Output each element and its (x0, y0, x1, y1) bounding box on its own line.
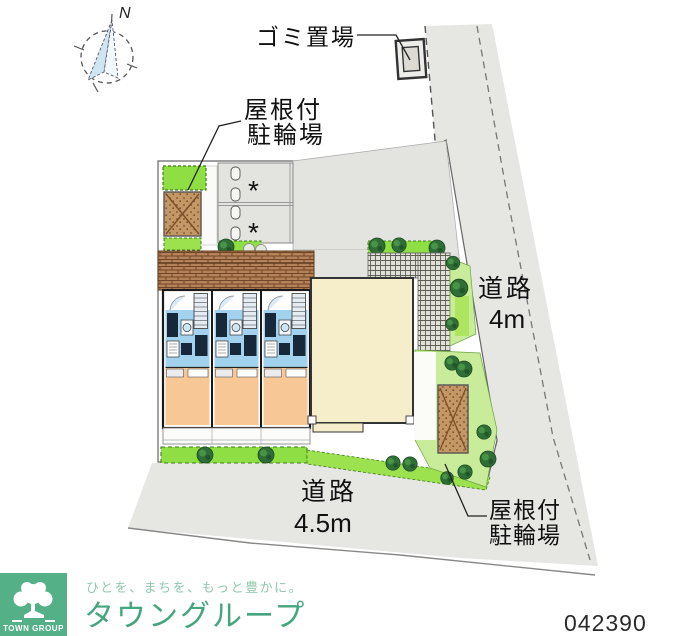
tree-icon (456, 361, 472, 377)
tiled-roof (158, 251, 314, 290)
road-bottom-label: 道路 4.5m (294, 478, 357, 538)
parking-stall-mark: * (248, 175, 259, 206)
bush-bed (161, 447, 307, 463)
tree-icon (480, 451, 496, 467)
svg-text:駐輪場: 駐輪場 (489, 522, 561, 548)
unit-floorplan (264, 294, 308, 426)
compass-icon: N (74, 5, 137, 92)
walkway-strip (414, 352, 436, 440)
svg-text:道路: 道路 (478, 275, 534, 303)
tree-icon (369, 238, 385, 254)
balcony-strip (163, 428, 310, 444)
unit-floorplan (166, 294, 210, 426)
town-group-logo: TOWN GROUP (0, 573, 67, 636)
tree-icon (446, 256, 460, 270)
tree-icon (386, 456, 400, 470)
bush-bed (455, 296, 469, 336)
bike-parking-area-top (164, 192, 201, 236)
garbage-area-label: ゴミ置場 (256, 24, 356, 50)
bush-bed (163, 166, 206, 190)
svg-text:道路: 道路 (301, 478, 357, 506)
bike-parking-top-label: 屋根付 駐輪場 (244, 97, 325, 149)
tree-icon (458, 465, 472, 479)
svg-text:屋根付: 屋根付 (244, 97, 322, 124)
tree-icon (258, 447, 274, 463)
plan-code: 042390 (564, 610, 647, 636)
site-plan-drawing: * * (0, 0, 700, 636)
tree-icon (392, 238, 406, 252)
tree-icon (403, 457, 417, 471)
logo-caption: TOWN GROUP (3, 624, 64, 633)
bike-parking-area-bottom (438, 385, 468, 453)
tree-icon (477, 425, 491, 439)
parking-lot: * * (218, 163, 293, 248)
svg-text:屋根付: 屋根付 (489, 497, 561, 523)
bush-bed (164, 238, 201, 250)
site-plan-page: * * (0, 0, 700, 636)
svg-text:4m: 4m (489, 304, 525, 334)
tree-icon (446, 318, 459, 331)
compass-north-label: N (119, 5, 131, 22)
wheel-stop-icon (231, 206, 240, 219)
main-building (308, 278, 414, 432)
svg-text:4.5m: 4.5m (294, 508, 352, 538)
apartment-building (163, 290, 310, 428)
tree-icon (450, 279, 468, 297)
footer-brand: タウングループ (84, 600, 306, 633)
wheel-stop-icon (231, 188, 240, 201)
wheel-stop-icon (231, 227, 240, 240)
footer-tagline: ひとを、まちを、もっと豊かに。 (86, 580, 303, 595)
garbage-box (396, 39, 427, 79)
wheel-stop-icon (231, 167, 240, 180)
bike-parking-bottom-label: 屋根付 駐輪場 (489, 497, 561, 548)
unit-floorplan (215, 294, 259, 426)
svg-text:駐輪場: 駐輪場 (247, 122, 325, 149)
tree-icon (197, 447, 213, 463)
